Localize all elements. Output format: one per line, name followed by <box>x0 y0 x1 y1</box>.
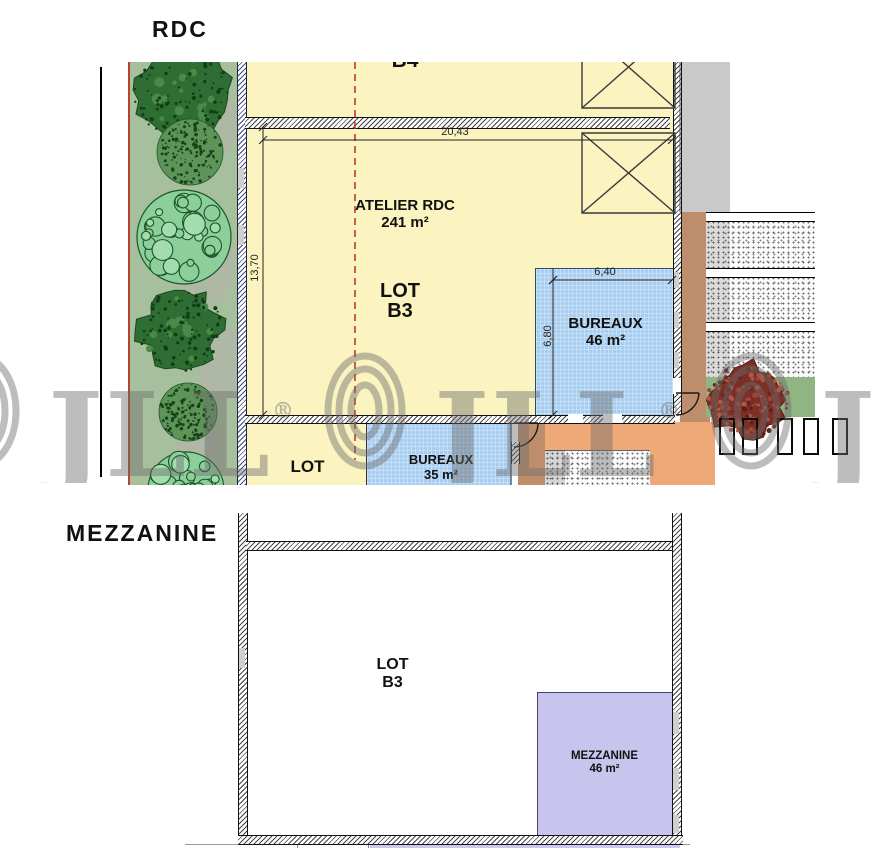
mezz-bottom-wall <box>238 835 683 845</box>
mezz-top-wall <box>246 541 672 551</box>
dim-bureaux-height: 6,80 <box>542 316 554 356</box>
mezzanine-title: MEZZANINE <box>66 520 218 547</box>
lot-lower-label: LOT <box>270 457 345 476</box>
mezz-left-wall <box>238 513 248 843</box>
sectional-door-symbol <box>582 133 675 213</box>
floor-plan-page: RDC MEZZANINE <box>0 0 877 848</box>
mezz-right-wall-window <box>673 815 679 833</box>
bureaux-35-name: BUREAUX <box>395 453 487 468</box>
rdc-title: RDC <box>152 16 208 43</box>
atelier-label: ATELIER RDC 241 m² <box>325 198 485 232</box>
bureaux-46-name: BUREAUX <box>548 316 663 333</box>
mezzanine-floor-plan: LOT B3 MEZZANINE 46 m² <box>0 513 877 848</box>
parking-divider <box>832 418 848 455</box>
mezz-right-wall <box>672 513 682 843</box>
mezzanine-room-area: 46 m² <box>543 763 666 776</box>
atelier-area: 241 m² <box>325 215 485 232</box>
bureaux-46-area: 46 m² <box>548 333 663 350</box>
mezz-left-wall-window <box>239 648 245 668</box>
lot-b3-label: LOT B3 <box>330 281 470 321</box>
dim-height-total: 13,70 <box>249 248 261 288</box>
mezz-right-wall-window <box>673 712 679 734</box>
mezzanine-room-label: MEZZANINE 46 m² <box>543 750 666 776</box>
adjacent-lot-label: B4 <box>380 62 430 73</box>
atelier-name: ATELIER RDC <box>325 198 485 215</box>
lot-label: LOT <box>330 281 470 301</box>
dim-bureaux-width: 6,40 <box>575 266 635 278</box>
bureaux-46-label: BUREAUX 46 m² <box>548 316 663 350</box>
sectional-door-symbol <box>582 62 675 108</box>
parking-divider <box>719 418 735 455</box>
mezz-lot-b3-label: LOT B3 <box>330 656 455 692</box>
mezz-lot-label: LOT <box>330 656 455 674</box>
parking-divider <box>742 418 758 455</box>
bureaux-46-door <box>676 393 699 415</box>
lot-number: B3 <box>330 301 470 321</box>
parking-divider <box>803 418 819 455</box>
mezz-lot-number: B3 <box>330 674 455 692</box>
parking-divider <box>777 418 793 455</box>
bureaux-35-area: 35 m² <box>395 468 487 483</box>
mezzanine-room-name: MEZZANINE <box>543 750 666 763</box>
bureaux-35-label: BUREAUX 35 m² <box>395 453 487 482</box>
bureaux-35-door <box>514 423 538 447</box>
mezz-right-wall-window <box>673 768 679 790</box>
rdc-floor-plan: B4 ATELIER RDC 241 m² LOT B3 BUREAUX 46 … <box>0 62 877 485</box>
dim-width-total: 20,43 <box>420 126 490 138</box>
